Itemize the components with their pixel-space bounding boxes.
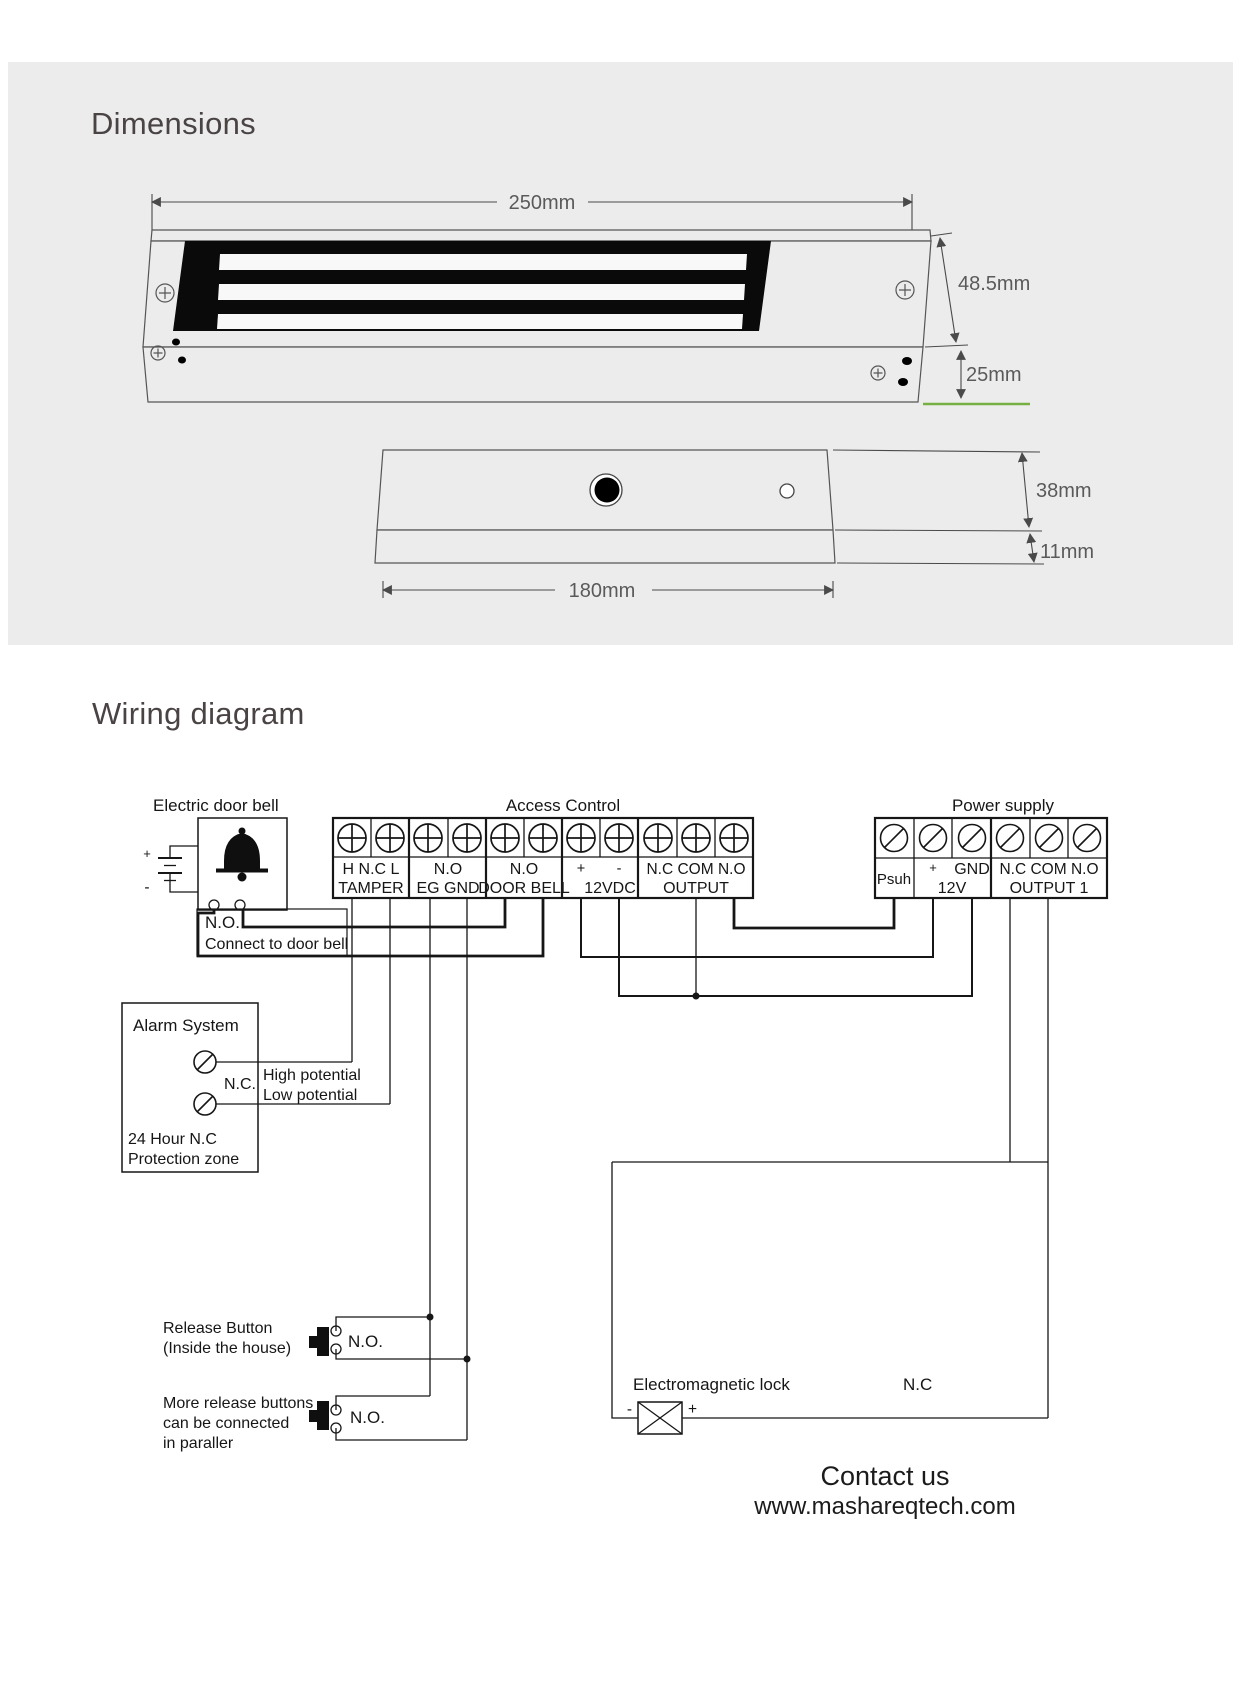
dimensions-drawing: 250mm [0, 0, 1241, 645]
screw-terminal-icon [720, 824, 748, 852]
more-buttons-no-label: N.O. [350, 1408, 385, 1427]
door-bell-title: Electric door bell [153, 796, 279, 815]
terminal-label: N.C COM N.O [999, 861, 1098, 878]
website-url: www.mashareqtech.com [620, 1493, 1150, 1521]
release-button-label: Release Button [163, 1320, 272, 1337]
alarm-zone-label: Protection zone [128, 1151, 239, 1168]
contact-us-text: Contact us [620, 1461, 1150, 1492]
alarm-nc-label: N.C. [224, 1076, 256, 1093]
battery-plus-label: + [143, 846, 151, 861]
mount-hole [172, 339, 180, 346]
lock-width-dimension: 250mm [152, 192, 912, 232]
mount-hole [902, 357, 912, 365]
plate-width-dimension: 38mm 11mm [833, 450, 1094, 564]
terminal-label: N.C COM N.O [646, 861, 745, 878]
terminal-label: 12V [938, 880, 967, 897]
door-bell-box [198, 818, 287, 910]
release-button-1: Release Button (Inside the house) N.O. [163, 1320, 383, 1357]
maglock-plus-label: + [688, 1401, 697, 1418]
plate-center-hole-inner [595, 478, 620, 503]
wires [198, 898, 1048, 1440]
page: Dimensions Wiring diagram 250mm [0, 0, 1241, 1684]
lock-height-dimension: 48.5mm [925, 233, 1030, 347]
screw-terminal-icon [414, 824, 442, 852]
slotted-screw-icon [1036, 825, 1063, 852]
slotted-screw-icon [959, 825, 986, 852]
plate-thickness-label: 11mm [1040, 541, 1094, 563]
screw-terminal-icon [376, 824, 404, 852]
alarm-system-box: Alarm System N.C. High potential Low pot… [122, 1003, 361, 1172]
screw-terminal-icon [644, 824, 672, 852]
power-supply-terminal-block: Psuh + GND 12V N.C COM N.O OUTPUT 1 [875, 818, 1107, 898]
armature-plate-drawing [375, 450, 835, 563]
lock-width-label: 250mm [509, 192, 576, 214]
alarm-high-label: High potential [263, 1067, 361, 1084]
more-buttons-label: can be connected [163, 1415, 289, 1432]
alarm-zone-label: 24 Hour N.C [128, 1131, 217, 1148]
release-button-2: More release buttons can be connected in… [163, 1395, 385, 1452]
screw-terminal-icon [682, 824, 710, 852]
maglock-symbol-icon [638, 1402, 682, 1434]
power-supply-title: Power supply [952, 796, 1055, 815]
more-buttons-label: More release buttons [163, 1395, 313, 1412]
plate-width-label: 38mm [1036, 480, 1092, 502]
maglock-body-drawing [143, 230, 931, 402]
plate-length-dimension: 180mm [383, 580, 833, 602]
terminal-label: EG GND [416, 880, 479, 897]
mount-hole [178, 357, 186, 364]
mount-hole [898, 378, 908, 386]
plate-side-hole [780, 484, 794, 498]
terminal-label: DOOR BELL [478, 880, 570, 897]
junction-dot [464, 1356, 471, 1363]
maglock-minus-label: - [627, 1401, 632, 1418]
terminal-label: TAMPER [338, 880, 403, 897]
battery-wires [170, 846, 198, 892]
screw-terminal-icon [491, 824, 519, 852]
maglock-label: Electromagnetic lock [633, 1375, 790, 1394]
screw-terminal-icon [605, 824, 633, 852]
door-bell-no-label: N.O. [205, 913, 240, 932]
screw-terminal-icon [529, 824, 557, 852]
terminal-label: Psuh [877, 871, 911, 888]
bell-icon [216, 828, 268, 882]
slotted-screw-icon [194, 1093, 216, 1115]
junction-dot [693, 993, 700, 1000]
junction-dot [427, 1314, 434, 1321]
more-buttons-label: in paraller [163, 1435, 234, 1452]
terminal-label: H N.C L [343, 861, 400, 878]
screw-terminal-icon [453, 824, 481, 852]
slotted-screw-icon [194, 1051, 216, 1073]
release-button-no-label: N.O. [348, 1332, 383, 1351]
footer: Contact us www.mashareqtech.com [620, 1461, 1150, 1521]
maglock-nc-label: N.C [903, 1375, 932, 1394]
slotted-screw-icon [997, 825, 1024, 852]
terminal-label: N.O [510, 861, 538, 878]
lock-depth-dimension: 25mm [923, 351, 1030, 404]
lock-depth-label: 25mm [966, 364, 1022, 386]
electromagnetic-lock: Electromagnetic lock N.C - + [627, 1375, 932, 1434]
alarm-low-label: Low potential [263, 1087, 357, 1104]
terminal-label: + [929, 860, 937, 875]
plate-length-label: 180mm [569, 580, 636, 602]
terminal-label: OUTPUT [663, 880, 729, 897]
terminal-label: OUTPUT 1 [1010, 880, 1089, 897]
access-control-title: Access Control [506, 796, 620, 815]
terminal-label: - [617, 861, 622, 877]
screw-terminal-icon [567, 824, 595, 852]
terminal-label: GND [954, 861, 990, 878]
slotted-screw-icon [1074, 825, 1101, 852]
slotted-screw-icon [881, 825, 908, 852]
door-bell-note: N.O. Connect to door bell [197, 909, 348, 956]
push-button-icon [309, 1327, 329, 1356]
battery-icon: + - [143, 846, 182, 896]
lock-height-label: 48.5mm [958, 273, 1030, 295]
wiring-drawing: Electric door bell Access Control Power … [0, 645, 1241, 1684]
access-control-terminal-block: H N.C L TAMPER N.O EG GND N.O DOOR BELL … [333, 818, 753, 898]
release-button-label: (Inside the house) [163, 1340, 291, 1357]
door-bell-note-text: Connect to door bell [205, 936, 348, 953]
alarm-title: Alarm System [133, 1016, 239, 1035]
screw-terminal-icon [338, 824, 366, 852]
terminal-label: + [577, 861, 585, 877]
battery-minus-label: - [144, 879, 149, 896]
terminal-label: N.O [434, 861, 462, 878]
terminal-label: 12VDC [584, 880, 636, 897]
slotted-screw-icon [920, 825, 947, 852]
